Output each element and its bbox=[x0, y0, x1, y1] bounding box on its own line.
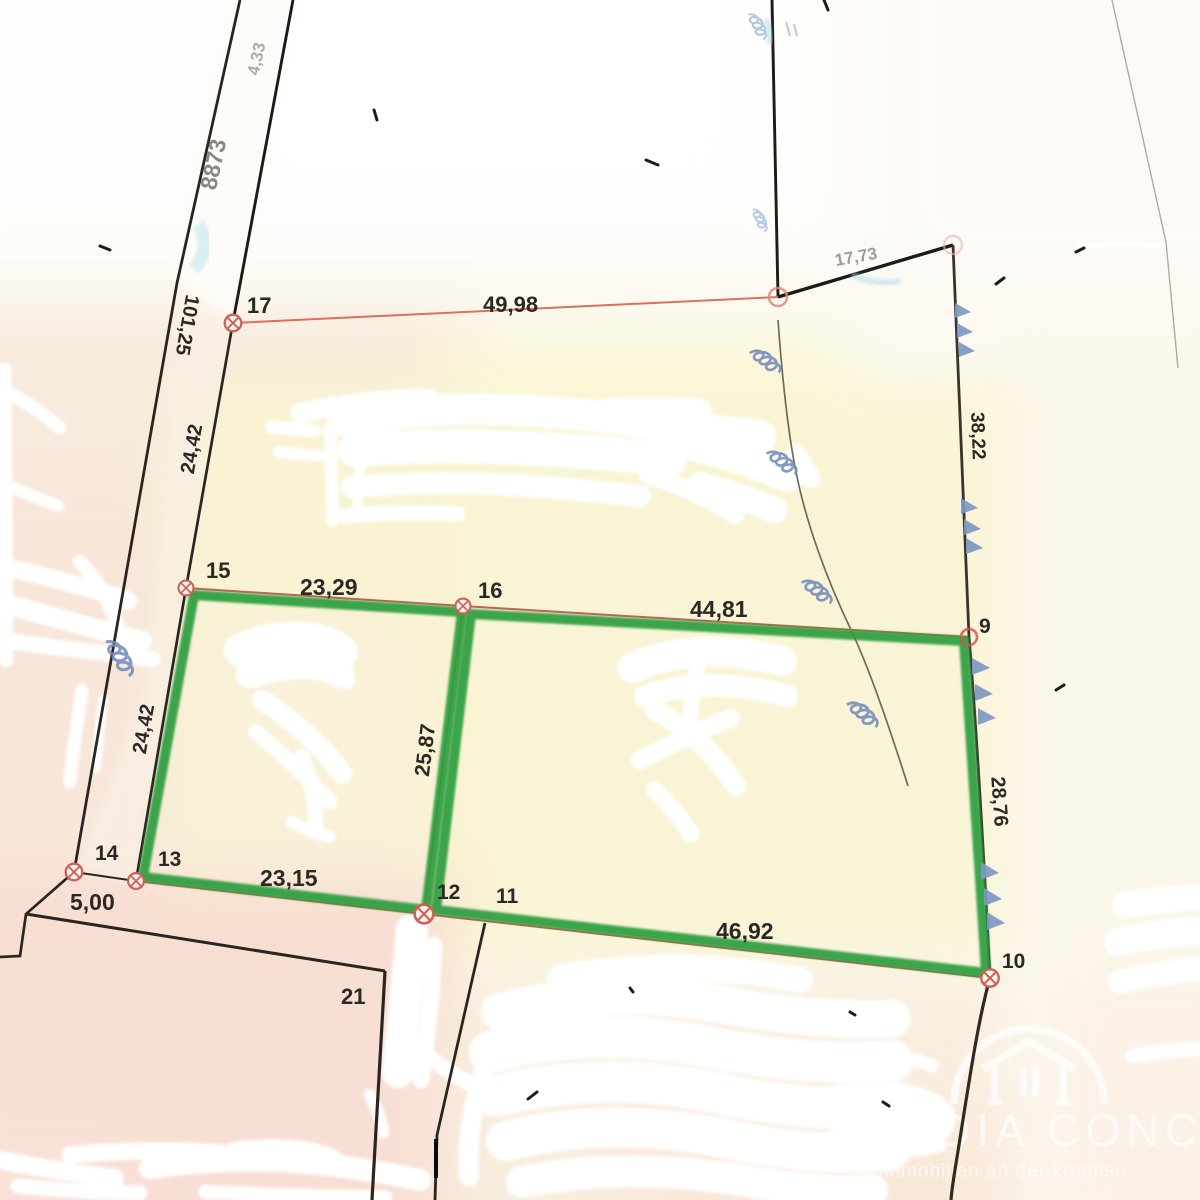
svg-text:21: 21 bbox=[341, 984, 365, 1009]
svg-text:23,29: 23,29 bbox=[300, 574, 358, 600]
svg-text:16: 16 bbox=[478, 578, 502, 603]
svg-text:14: 14 bbox=[95, 842, 119, 865]
svg-text:11: 11 bbox=[496, 885, 519, 908]
svg-text:17: 17 bbox=[247, 293, 271, 318]
svg-text:9: 9 bbox=[979, 615, 991, 638]
svg-text:38,22: 38,22 bbox=[966, 412, 989, 460]
svg-text:46,92: 46,92 bbox=[716, 918, 774, 944]
svg-text:28,76: 28,76 bbox=[986, 776, 1011, 827]
svg-text:49,98: 49,98 bbox=[483, 292, 538, 317]
svg-text:DIA CONC: DIA CONC bbox=[938, 1105, 1200, 1156]
svg-text:23,15: 23,15 bbox=[260, 865, 318, 891]
svg-text:15: 15 bbox=[206, 558, 230, 583]
svg-text:13: 13 bbox=[158, 848, 181, 871]
svg-text:12: 12 bbox=[437, 881, 460, 904]
svg-text:Immobilien an der kroatisc: Immobilien an der kroatisc bbox=[878, 1161, 1126, 1182]
svg-text:5,00: 5,00 bbox=[70, 889, 115, 915]
svg-text:10: 10 bbox=[1002, 950, 1025, 973]
svg-text:44,81: 44,81 bbox=[690, 596, 748, 622]
